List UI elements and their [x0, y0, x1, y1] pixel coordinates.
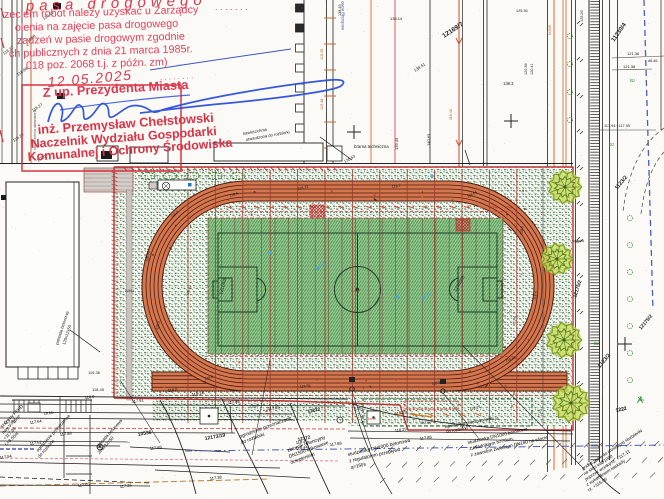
svg-text:Bz: Bz [594, 341, 600, 346]
svg-text:125.36: 125.36 [516, 9, 528, 13]
svg-text:125.26: 125.26 [580, 10, 584, 22]
svg-text:121.36: 121.36 [627, 51, 640, 56]
svg-text:118.4: 118.4 [533, 291, 538, 300]
svg-text:120.36: 120.36 [524, 63, 528, 75]
svg-text:121.38: 121.38 [623, 64, 636, 69]
svg-text:116.45: 116.45 [320, 49, 324, 60]
svg-text:ks300: ks300 [548, 25, 552, 35]
svg-text:140.63: 140.63 [426, 133, 431, 146]
svg-text:brama techniczna: brama techniczna [354, 144, 389, 149]
svg-text:140.1: 140.1 [320, 263, 328, 267]
svg-text:118.45: 118.45 [92, 387, 105, 392]
svg-text:138.3: 138.3 [503, 81, 514, 86]
svg-text:115.48: 115.48 [320, 99, 324, 110]
svg-text:118.45: 118.45 [449, 109, 453, 120]
svg-text:K.1a: K.1a [351, 288, 360, 293]
svg-text:Bz: Bz [630, 78, 636, 83]
svg-text:d6.46: d6.46 [648, 59, 658, 63]
svg-text:138.45: 138.45 [338, 4, 342, 16]
svg-text:118.45: 118.45 [488, 417, 499, 421]
svg-text:121.06: 121.06 [420, 421, 431, 425]
svg-text:140.1: 140.1 [426, 293, 434, 297]
svg-text:117.94 +117.95: 117.94 +117.95 [604, 124, 630, 128]
svg-text:Δ441: Δ441 [125, 288, 135, 293]
svg-text:kanal: kanal [368, 417, 377, 421]
svg-text:139.43: 139.43 [394, 137, 399, 150]
svg-text:. . . . . . .: . . . . . . . [215, 2, 248, 12]
svg-text:120.41: 120.41 [530, 63, 534, 75]
svg-text:119.36: 119.36 [88, 370, 101, 375]
svg-text:138.14: 138.14 [390, 16, 403, 21]
svg-text:Bz: Bz [609, 142, 615, 147]
